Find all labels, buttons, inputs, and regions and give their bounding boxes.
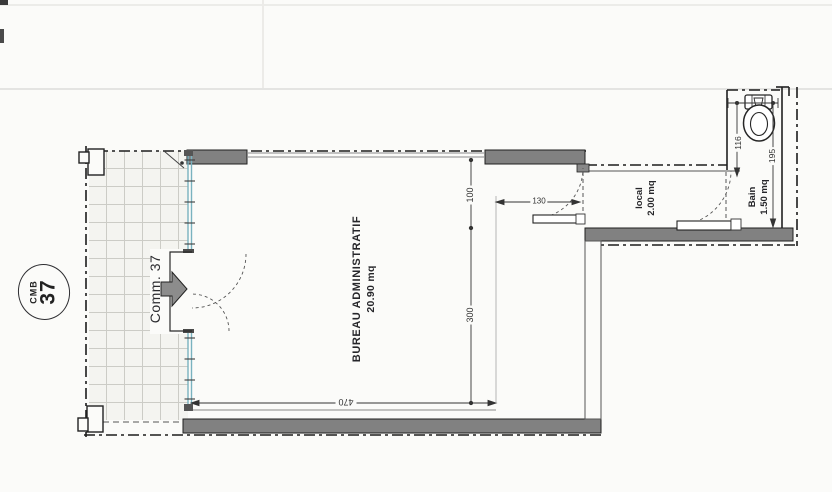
local-name: local <box>634 180 646 215</box>
floor-plan: CMB 37 Comm. 37 BUREAU ADMINISTRATIF 20.… <box>0 0 832 492</box>
door-leaf <box>533 215 583 223</box>
fold-mark <box>262 0 264 88</box>
entry-door-swings <box>192 254 246 331</box>
mullion-ticks <box>185 160 196 399</box>
bain-area: 1.50 mq <box>759 179 771 214</box>
dim-niche-width: 130 <box>530 197 547 206</box>
entrance <box>161 252 246 331</box>
wall-top-left <box>187 150 247 164</box>
bureau-area: 20.90 mq <box>364 216 378 362</box>
bureau-label: BUREAU ADMINISTRATIF 20.90 mq <box>350 216 378 362</box>
door-local-bain <box>677 171 741 230</box>
bain-name: Bain <box>747 179 759 214</box>
bain-label: Bain 1.50 mq <box>747 179 771 214</box>
dim-upper-height: 100 <box>465 185 475 204</box>
door-leaf <box>677 221 731 230</box>
wall-bottom-bureau <box>183 419 601 433</box>
glazing-tie <box>164 151 184 168</box>
dim-bain-width: 116 <box>733 134 743 152</box>
unit-badge-text: CMB 37 <box>30 279 59 304</box>
pilaster-top-left <box>88 149 104 175</box>
glazing-top-cap <box>184 150 193 156</box>
local-label: local 2.00 mq <box>634 180 658 215</box>
bureau-name: BUREAU ADMINISTRATIF <box>350 216 364 362</box>
pilaster-bottom-left-notch <box>78 418 88 431</box>
dimension-lines <box>191 98 778 406</box>
entrance-label: Comm. 37 <box>147 255 163 324</box>
scan-mark <box>0 0 8 5</box>
unit-badge-number: 37 <box>39 279 59 304</box>
local-area: 2.00 mq <box>646 180 658 215</box>
dim-width: 470 <box>335 397 356 407</box>
dim-main-height: 300 <box>465 305 475 324</box>
pilaster-bottom-left <box>87 406 103 432</box>
dim-bain-depth: 195 <box>767 147 777 165</box>
glazing-bottom-cap <box>184 404 193 411</box>
wall-bureau-right <box>585 241 601 419</box>
entry-arrow-icon <box>161 272 187 306</box>
wall-top-right <box>485 150 585 164</box>
pilasters <box>78 149 104 432</box>
scan-mark <box>0 29 4 43</box>
door-bureau-local <box>533 164 589 224</box>
page-lines <box>0 0 832 89</box>
toilet-icon <box>744 95 775 141</box>
plan-linework <box>0 0 832 492</box>
walls <box>183 150 793 433</box>
pilaster-top-left-notch <box>79 152 89 163</box>
